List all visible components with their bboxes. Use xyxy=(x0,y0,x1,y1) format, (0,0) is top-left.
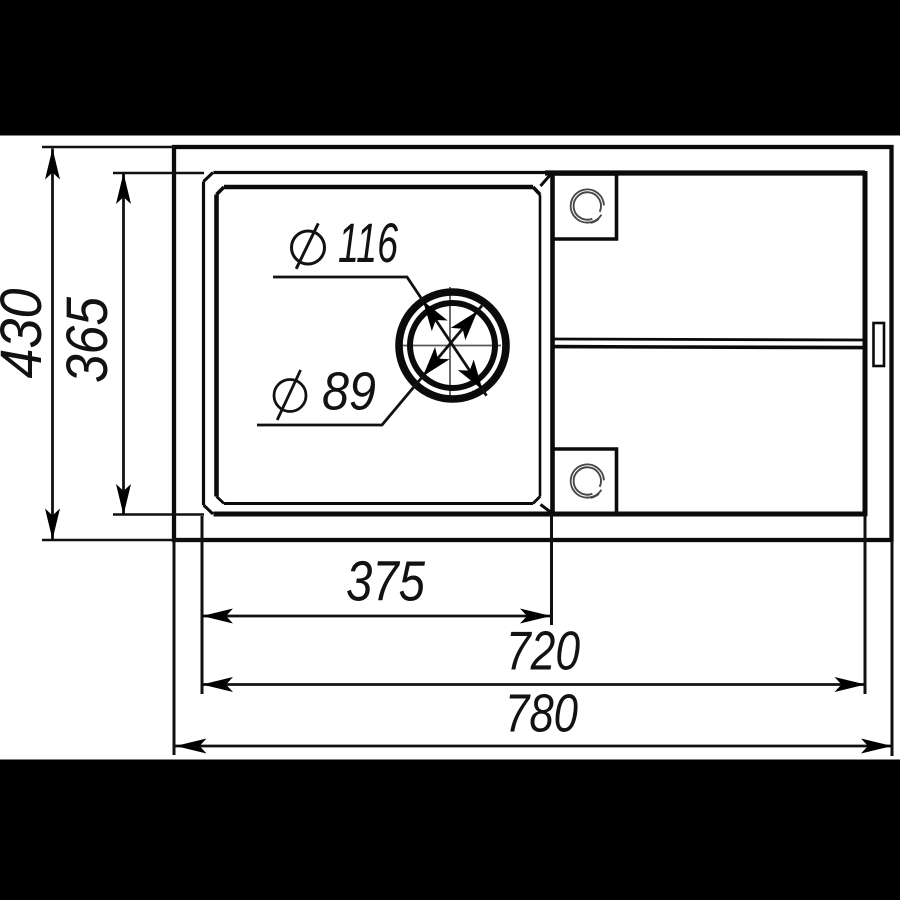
svg-text:365: 365 xyxy=(55,296,120,383)
svg-text:375: 375 xyxy=(346,550,425,614)
svg-text:89: 89 xyxy=(322,362,376,422)
svg-text:430: 430 xyxy=(0,289,54,379)
svg-text:720: 720 xyxy=(506,620,580,682)
svg-text:780: 780 xyxy=(505,684,578,744)
svg-text:116: 116 xyxy=(338,211,399,274)
